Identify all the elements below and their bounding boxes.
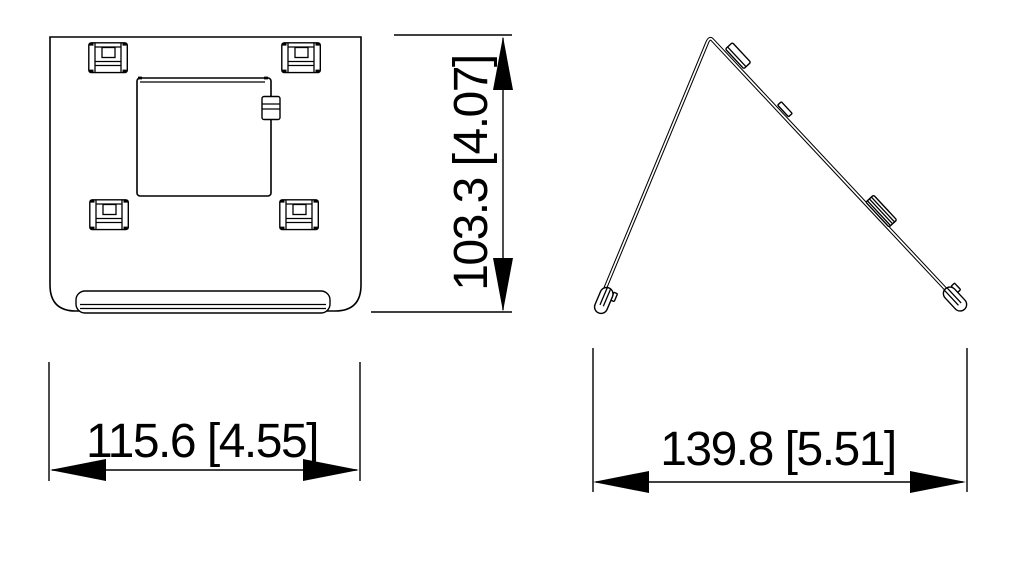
front-width-dimension-label: 115.6 [4.55] [42, 417, 362, 467]
mounting-clip-bottom-right [280, 200, 319, 230]
foot-front [593, 285, 619, 316]
drawing-lineart [0, 0, 1030, 562]
bottom-support-bar [76, 291, 330, 313]
vesa-mount-plate [137, 78, 271, 196]
stand-side-view [593, 39, 973, 317]
side-depth-dimension-label: 139.8 [5.51] [618, 425, 938, 475]
stand-front-view [50, 37, 361, 313]
mounting-clip-bottom-left [90, 200, 129, 230]
latch-tab [262, 97, 280, 120]
technical-drawing-canvas: 103.3 [4.07] 115.6 [4.55] 139.8 [5.51] [0, 0, 1030, 562]
mounting-clip-top-left [89, 43, 128, 73]
height-dimension-label: 103.3 [4.07] [447, 33, 497, 313]
mounting-clip-top-right [282, 43, 321, 73]
